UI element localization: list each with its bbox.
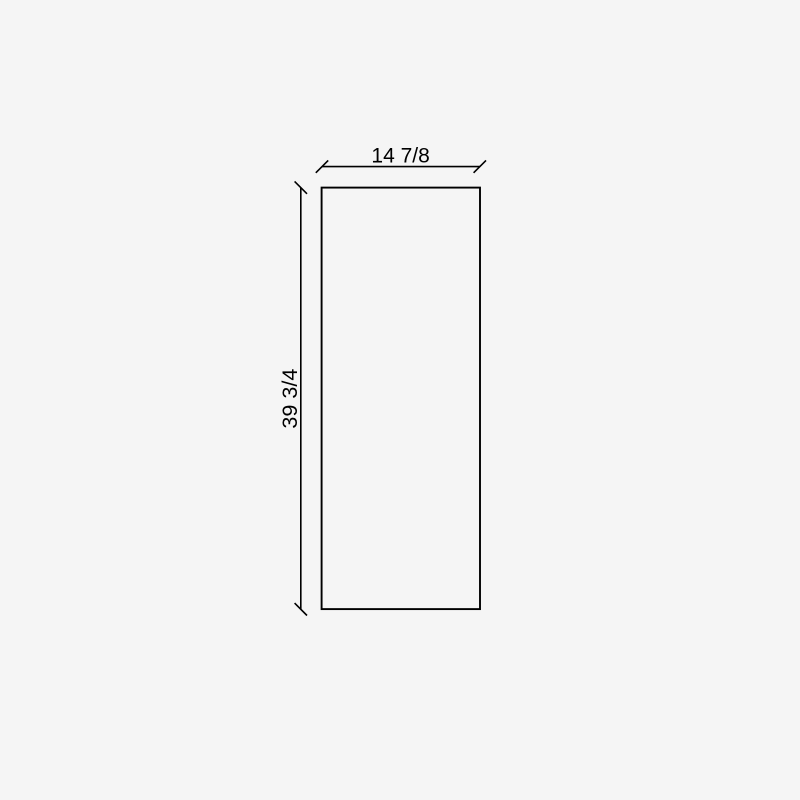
- svg-text:39 3/4: 39 3/4: [277, 369, 302, 429]
- svg-text:14 7/8: 14 7/8: [371, 145, 429, 168]
